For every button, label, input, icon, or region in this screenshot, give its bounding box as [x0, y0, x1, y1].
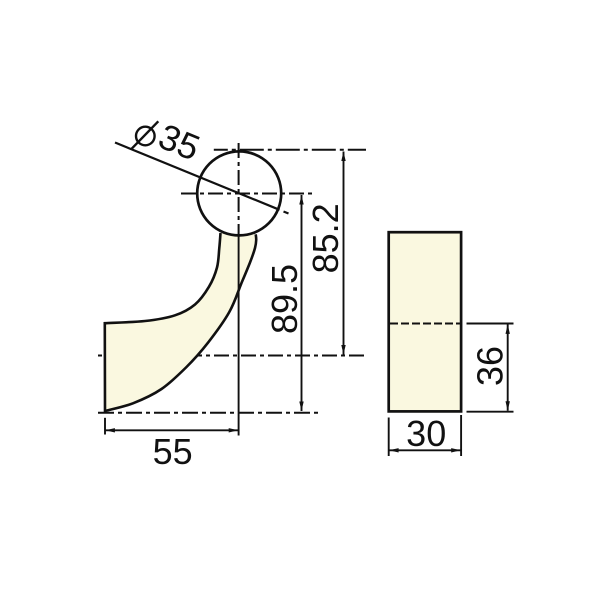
svg-text:30: 30: [406, 413, 446, 454]
svg-text:36: 36: [470, 346, 511, 386]
svg-text:89.5: 89.5: [264, 264, 305, 334]
svg-text:55: 55: [153, 431, 193, 472]
svg-text:85.2: 85.2: [305, 203, 346, 273]
